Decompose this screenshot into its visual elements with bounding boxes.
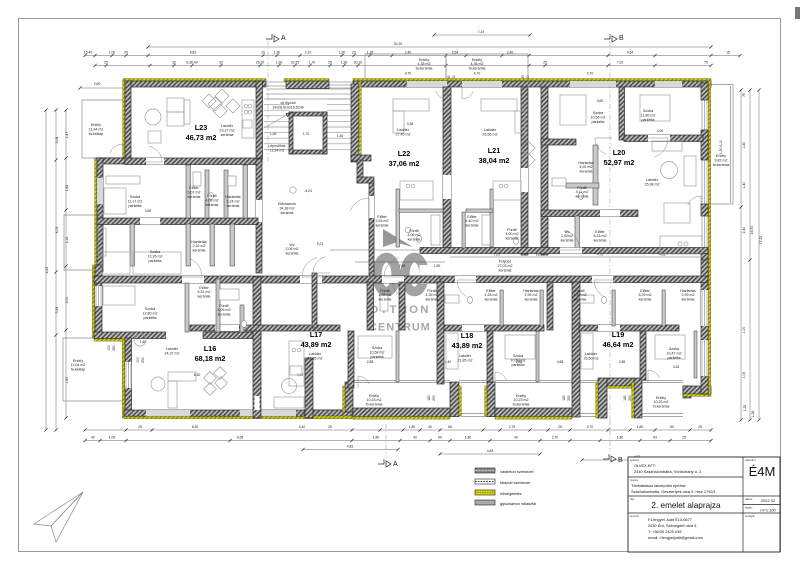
svg-text:10,58 m2: 10,58 m2 xyxy=(511,359,526,363)
svg-text:3,38: 3,38 xyxy=(407,122,414,126)
svg-text:fa.kerámia: fa.kerámia xyxy=(469,66,486,70)
svg-text:Szoba: Szoba xyxy=(643,109,653,113)
svg-text:Szoba: Szoba xyxy=(669,347,679,351)
svg-text:180: 180 xyxy=(623,395,627,401)
svg-text:kerámia: kerámia xyxy=(206,203,219,207)
svg-text:rajz:: rajz: xyxy=(630,497,635,501)
svg-text:1,70: 1,70 xyxy=(309,61,316,65)
svg-text:1,30: 1,30 xyxy=(339,51,346,55)
svg-text:52,97 m2: 52,97 m2 xyxy=(604,158,635,167)
svg-text:1,30: 1,30 xyxy=(337,134,344,138)
svg-text:1,30: 1,30 xyxy=(276,61,283,65)
svg-text:vasbeton szerkezet: vasbeton szerkezet xyxy=(500,469,534,474)
svg-text:4,70: 4,70 xyxy=(474,72,481,76)
svg-text:24,37 m2: 24,37 m2 xyxy=(165,352,180,356)
svg-text:kerámia: kerámia xyxy=(379,297,392,301)
svg-text:1,47: 1,47 xyxy=(65,132,69,139)
svg-text:43,89 m2: 43,89 m2 xyxy=(452,341,483,350)
svg-text:Lépcsőház: Lépcsőház xyxy=(268,144,286,148)
svg-text:Szoba: Szoba xyxy=(145,307,155,311)
svg-text:250: 250 xyxy=(112,345,116,351)
svg-text:4,83: 4,83 xyxy=(347,445,354,449)
svg-text:Százhalombatta, Gesztenyés utc: Százhalombatta, Gesztenyés utca 9. hrsz … xyxy=(631,489,716,494)
svg-text:3,69: 3,69 xyxy=(145,209,152,213)
svg-text:32,20: 32,20 xyxy=(394,42,403,46)
svg-text:11,94 m2: 11,94 m2 xyxy=(89,128,104,132)
svg-text:parketta: parketta xyxy=(129,204,142,208)
svg-text:Lakótér: Lakótér xyxy=(646,178,659,182)
svg-text:kerámia: kerámia xyxy=(499,268,512,272)
svg-text:kerámia: kerámia xyxy=(218,312,231,316)
svg-text:É4M: É4M xyxy=(749,464,776,479)
svg-text:15: 15 xyxy=(726,51,730,55)
svg-text:L23: L23 xyxy=(195,123,208,132)
svg-text:2,85: 2,85 xyxy=(619,360,626,364)
svg-text:2,10: 2,10 xyxy=(305,51,312,55)
svg-text:20: 20 xyxy=(352,51,356,55)
svg-text:2,75: 2,75 xyxy=(509,425,516,429)
svg-text:1,28: 1,28 xyxy=(751,411,755,418)
svg-text:20,25: 20,25 xyxy=(291,61,300,65)
svg-text:75: 75 xyxy=(742,93,746,97)
svg-text:2,70: 2,70 xyxy=(587,425,594,429)
svg-text:93: 93 xyxy=(653,436,657,440)
svg-text:3,08: 3,08 xyxy=(55,137,59,144)
svg-text:25: 25 xyxy=(558,425,562,429)
svg-text:100: 100 xyxy=(107,345,111,351)
svg-text:4,00: 4,00 xyxy=(657,129,664,133)
svg-text:180: 180 xyxy=(562,395,566,401)
svg-text:68,18 m2: 68,18 m2 xyxy=(195,354,226,363)
svg-text:1,50 6,10: 1,50 6,10 xyxy=(719,140,723,154)
svg-text:B: B xyxy=(618,457,623,464)
svg-text:kerámia: kerámia xyxy=(574,297,587,301)
svg-text:építtető:: építtető: xyxy=(630,458,640,462)
svg-text:Erkély: Erkély xyxy=(716,154,726,158)
svg-text:25: 25 xyxy=(328,61,332,65)
svg-text:21,85 m2: 21,85 m2 xyxy=(308,357,323,361)
svg-text:43,89 m2: 43,89 m2 xyxy=(301,340,332,349)
svg-text:2. emelet alaprajza: 2. emelet alaprajza xyxy=(651,501,721,510)
svg-text:250: 250 xyxy=(432,395,436,401)
svg-text:6,30: 6,30 xyxy=(192,425,199,429)
svg-text:38,04 m2: 38,04 m2 xyxy=(479,156,510,165)
svg-text:50: 50 xyxy=(670,425,674,429)
svg-text:L21: L21 xyxy=(488,146,501,155)
svg-text:A: A xyxy=(281,35,286,42)
svg-text:Folyosó: Folyosó xyxy=(499,260,512,264)
svg-text:20,20: 20,20 xyxy=(354,61,363,65)
svg-text:kerámia: kerámia xyxy=(561,238,574,242)
svg-text:4,83: 4,83 xyxy=(487,449,494,453)
svg-text:2,70: 2,70 xyxy=(552,436,559,440)
svg-text:25,20: 25,20 xyxy=(256,61,265,65)
svg-text:2030 Érd, Szénégető utca 3.: 2030 Érd, Szénégető utca 3. xyxy=(648,523,697,528)
svg-text:15 40: 15 40 xyxy=(84,51,93,55)
svg-text:5,34: 5,34 xyxy=(55,307,59,314)
svg-text:2,24 m2: 2,24 m2 xyxy=(227,200,240,204)
svg-text:1,80: 1,80 xyxy=(742,142,746,149)
svg-text:6,38,40: 6,38,40 xyxy=(186,61,197,65)
svg-text:2,60: 2,60 xyxy=(94,82,101,86)
svg-text:kerámia: kerámia xyxy=(408,237,421,241)
svg-text:2022 02: 2022 02 xyxy=(761,498,775,503)
svg-text:Szoba: Szoba xyxy=(150,250,160,254)
svg-text:180: 180 xyxy=(427,395,431,401)
svg-text:27,03 m2: 27,03 m2 xyxy=(498,264,513,268)
svg-text:46,64 m2: 46,64 m2 xyxy=(603,340,634,349)
svg-text:kerámia: kerámia xyxy=(198,294,211,298)
svg-text:25: 25 xyxy=(138,425,142,429)
svg-text:gipszkarton válaszfal: gipszkarton válaszfal xyxy=(500,501,536,506)
svg-text:Szoba: Szoba xyxy=(372,346,382,350)
svg-text:4,25: 4,25 xyxy=(45,267,49,274)
svg-text:5,21: 5,21 xyxy=(317,242,324,246)
svg-text:17,25: 17,25 xyxy=(759,236,763,245)
svg-text:16,50: 16,50 xyxy=(750,226,754,235)
svg-text:Lakótér: Lakótér xyxy=(459,354,472,358)
svg-text:tervfajta:: tervfajta: xyxy=(745,514,755,518)
svg-text:4,08 m2: 4,08 m2 xyxy=(206,199,219,203)
svg-text:40: 40 xyxy=(428,425,432,429)
svg-text:lépték:: lépték: xyxy=(745,506,753,510)
svg-text:6,30: 6,30 xyxy=(194,373,201,377)
svg-text:Erkély: Erkély xyxy=(91,123,101,127)
svg-text:2,88: 2,88 xyxy=(367,360,374,364)
svg-text:1,80: 1,80 xyxy=(637,425,644,429)
svg-text:6,83: 6,83 xyxy=(190,51,197,55)
svg-text:tervező:: tervező: xyxy=(630,514,640,518)
svg-text:25: 25 xyxy=(104,61,108,65)
svg-text:1,00: 1,00 xyxy=(109,51,116,55)
svg-text:1,70: 1,70 xyxy=(303,132,310,136)
svg-text:Lakótér: Lakótér xyxy=(221,124,234,128)
svg-text:dátum:: dátum: xyxy=(745,497,753,501)
svg-text:kerámia: kerámia xyxy=(286,251,299,255)
svg-text:9,82 m2: 9,82 m2 xyxy=(715,159,728,163)
svg-text:1,80: 1,80 xyxy=(465,436,472,440)
svg-text:25,98 m2: 25,98 m2 xyxy=(645,183,660,187)
svg-text:kerámia: kerámia xyxy=(485,297,498,301)
svg-text:m=1:100: m=1:100 xyxy=(760,508,776,513)
svg-text:250: 250 xyxy=(141,357,145,363)
svg-text:25: 25 xyxy=(328,425,332,429)
svg-text:Szoba: Szoba xyxy=(593,111,603,115)
svg-text:Lakótér: Lakótér xyxy=(484,128,497,132)
svg-text:19x28,5cm/16,52db: 19x28,5cm/16,52db xyxy=(272,105,304,109)
svg-text:fa.kerámia: fa.kerámia xyxy=(513,402,530,406)
svg-text:1,50: 1,50 xyxy=(434,264,441,268)
svg-text:parketta: parketta xyxy=(642,118,655,122)
svg-text:kerámia: kerámia xyxy=(580,169,593,173)
svg-text:F.Lengyel Judit É13-0677: F.Lengyel Judit É13-0677 xyxy=(648,517,692,522)
svg-text:parketta: parketta xyxy=(144,316,157,320)
svg-text:10,58 m2: 10,58 m2 xyxy=(370,351,385,355)
svg-text:40: 40 xyxy=(413,436,417,440)
svg-text:20: 20 xyxy=(124,51,128,55)
svg-text:L17: L17 xyxy=(310,330,323,339)
svg-text:Előtér: Előtér xyxy=(189,186,199,190)
svg-text:Szoba: Szoba xyxy=(513,354,523,358)
svg-text:4,03: 4,03 xyxy=(55,227,59,234)
svg-text:13,26 m2: 13,26 m2 xyxy=(148,255,163,259)
svg-text:L16: L16 xyxy=(204,344,217,353)
svg-text:rajzszám:: rajzszám: xyxy=(745,458,756,462)
svg-text:3,00: 3,00 xyxy=(65,297,69,304)
svg-text:kerámia: kerámia xyxy=(466,223,479,227)
svg-text:1,80: 1,80 xyxy=(617,436,624,440)
svg-text:4,40: 4,40 xyxy=(299,425,306,429)
svg-text:fü.kerámia: fü.kerámia xyxy=(653,404,670,408)
svg-text:20: 20 xyxy=(261,51,265,55)
svg-text:40: 40 xyxy=(91,436,95,440)
svg-text:fa.kerámia: fa.kerámia xyxy=(416,66,433,70)
svg-text:11,17 m2: 11,17 m2 xyxy=(128,200,143,204)
svg-text:A: A xyxy=(393,461,398,468)
svg-text:fa.kéklap: fa.kéklap xyxy=(71,367,85,371)
svg-text:3,26: 3,26 xyxy=(673,365,680,369)
svg-text:2,40: 2,40 xyxy=(742,227,746,234)
svg-text:Szoba: Szoba xyxy=(130,195,140,199)
svg-text:7,92: 7,92 xyxy=(617,61,624,65)
svg-text:fa.kerámia: fa.kerámia xyxy=(713,163,730,167)
svg-text:falazott szerkezet: falazott szerkezet xyxy=(500,480,531,485)
svg-text:1,40: 1,40 xyxy=(742,182,746,189)
svg-text:Előcsarnok: Előcsarnok xyxy=(278,202,296,206)
svg-text:250: 250 xyxy=(567,395,571,401)
svg-text:parketta: parketta xyxy=(512,363,525,367)
svg-text:23,37 m2: 23,37 m2 xyxy=(220,129,235,133)
svg-text:3,60: 3,60 xyxy=(597,99,604,103)
svg-text:26,56 m2: 26,56 m2 xyxy=(483,133,498,137)
svg-text:40: 40 xyxy=(514,436,518,440)
svg-text:7,65: 7,65 xyxy=(399,264,406,268)
svg-text:4,64: 4,64 xyxy=(627,51,634,55)
svg-text:1,80: 1,80 xyxy=(409,425,416,429)
svg-text:75: 75 xyxy=(704,61,708,65)
svg-text:46,73 m2: 46,73 m2 xyxy=(186,133,217,142)
svg-text:66: 66 xyxy=(448,425,452,429)
svg-text:37,06 m2: 37,06 m2 xyxy=(389,159,420,168)
svg-text:1,80: 1,80 xyxy=(373,436,380,440)
svg-text:1,25: 1,25 xyxy=(743,405,747,412)
svg-text:5,07 m2: 5,07 m2 xyxy=(188,191,201,195)
svg-text:vb lépcső: vb lépcső xyxy=(280,101,295,105)
svg-text:Lakótér: Lakótér xyxy=(397,128,410,132)
svg-text:parketta: parketta xyxy=(592,120,605,124)
svg-text:25: 25 xyxy=(698,425,702,429)
svg-text:4,70: 4,70 xyxy=(587,72,594,76)
svg-text:kerámia: kerámia xyxy=(525,297,538,301)
svg-text:11,80 m2: 11,80 m2 xyxy=(641,114,656,118)
svg-text:L20: L20 xyxy=(613,148,626,157)
svg-text:4,68: 4,68 xyxy=(557,360,564,364)
svg-text:Többlakásos lakóépület építése: Többlakásos lakóépület építése xyxy=(631,483,686,488)
svg-text:munka:: munka: xyxy=(630,478,639,482)
svg-text:1,82: 1,82 xyxy=(65,185,69,192)
svg-text:L22: L22 xyxy=(398,149,411,158)
svg-text:4,70: 4,70 xyxy=(405,72,412,76)
svg-text:250: 250 xyxy=(628,395,632,401)
svg-text:T: +36/30 2425 039.: T: +36/30 2425 039. xyxy=(648,529,683,534)
svg-text:kerámia: kerámia xyxy=(426,297,439,301)
svg-text:32: 32 xyxy=(172,61,176,65)
svg-text:kerámia: kerámia xyxy=(506,236,519,240)
svg-text:9,28: 9,28 xyxy=(237,436,244,440)
svg-text:1,30: 1,30 xyxy=(274,51,281,55)
svg-text:Fürdő: Fürdő xyxy=(207,194,216,198)
svg-text:Lakótér: Lakótér xyxy=(309,352,322,356)
svg-text:fö.kerámia: fö.kerámia xyxy=(366,402,383,406)
svg-text:1,15: 1,15 xyxy=(65,237,69,244)
svg-text:32: 32 xyxy=(219,61,223,65)
svg-text:1,60: 1,60 xyxy=(65,377,69,384)
svg-text:11,94 m2: 11,94 m2 xyxy=(270,149,285,153)
svg-text:27,45 m2: 27,45 m2 xyxy=(396,133,411,137)
svg-text:kerámia: kerámia xyxy=(188,195,201,199)
svg-text:B: B xyxy=(619,35,624,42)
svg-text:Háztartás: Háztartás xyxy=(225,195,241,199)
svg-text:Lakótér: Lakótér xyxy=(585,352,598,356)
svg-text:kerámia: kerámia xyxy=(281,211,294,215)
svg-text:7,24: 7,24 xyxy=(478,30,485,34)
svg-text:1,30: 1,30 xyxy=(341,61,348,65)
svg-text:hőszigetelés: hőszigetelés xyxy=(500,491,522,496)
svg-text:10,47 m2: 10,47 m2 xyxy=(667,352,682,356)
svg-text:2440 Százhalombatta, Vörösmart: 2440 Százhalombatta, Vörösmarty u. 2. xyxy=(634,469,702,474)
svg-text:23,50 m2: 23,50 m2 xyxy=(584,357,599,361)
svg-text:email: f.lengyeljudit@gmail.co: email: f.lengyeljudit@gmail.com xyxy=(648,535,703,540)
svg-text:L18: L18 xyxy=(461,331,474,340)
svg-text:parketta: parketta xyxy=(668,356,681,360)
svg-text:parketta: parketta xyxy=(371,355,384,359)
svg-text:100: 100 xyxy=(136,357,140,363)
svg-text:kerámia: kerámia xyxy=(221,133,234,137)
svg-text:25: 25 xyxy=(682,436,686,440)
svg-text:25: 25 xyxy=(543,61,547,65)
svg-text:kerámia: kerámia xyxy=(227,204,240,208)
svg-text:parketta: parketta xyxy=(149,259,162,263)
svg-text:kerámia: kerámia xyxy=(576,194,589,198)
svg-text:10,56 m2: 10,56 m2 xyxy=(591,116,606,120)
svg-text:OLVEX KFT:: OLVEX KFT: xyxy=(634,463,656,468)
svg-text:66: 66 xyxy=(438,436,442,440)
svg-text:fa.kéklap: fa.kéklap xyxy=(89,132,103,136)
svg-text:kerámia: kerámia xyxy=(639,297,652,301)
svg-text:1,00: 1,00 xyxy=(109,436,116,440)
svg-text:12,80 m2: 12,80 m2 xyxy=(143,312,158,316)
svg-text:kerámia: kerámia xyxy=(594,238,607,242)
svg-text:Lakótér: Lakótér xyxy=(166,347,179,351)
svg-text:L19: L19 xyxy=(612,330,625,339)
svg-text:34,38 m2: 34,38 m2 xyxy=(280,207,295,211)
svg-text:21,85 m2: 21,85 m2 xyxy=(458,359,473,363)
svg-text:-4,24: -4,24 xyxy=(304,189,312,193)
svg-text:kerámia: kerámia xyxy=(193,248,206,252)
svg-text:1,00: 1,00 xyxy=(742,327,746,334)
svg-text:1,05: 1,05 xyxy=(742,372,746,379)
svg-text:kerámia: kerámia xyxy=(376,223,389,227)
svg-text:kerámia: kerámia xyxy=(682,297,695,301)
